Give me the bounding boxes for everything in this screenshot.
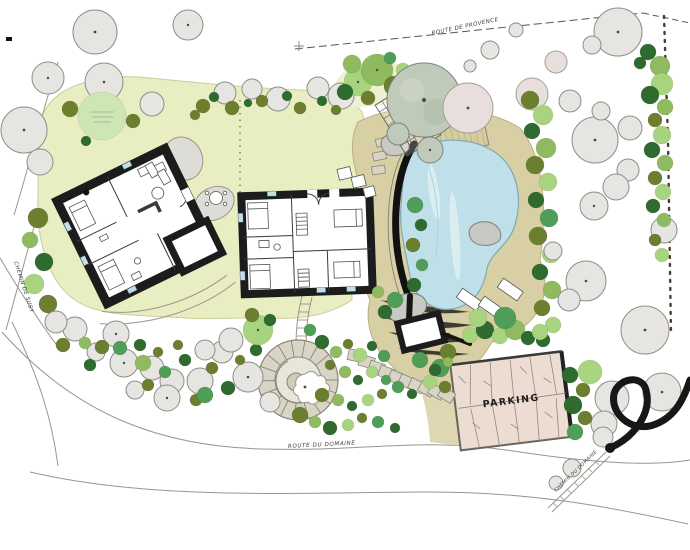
site-plan-canvas: PARKING bbox=[0, 0, 690, 550]
guest-house-floorplan bbox=[237, 188, 373, 296]
north-mark bbox=[294, 41, 304, 51]
grove-bottom-band bbox=[56, 308, 280, 412]
road-bottom-right-label: CHEMIN DU DOMAINE bbox=[553, 449, 599, 494]
road-top-label: ROUTE DE PROVENCE bbox=[431, 17, 499, 37]
parking-lot: PARKING bbox=[450, 351, 572, 450]
